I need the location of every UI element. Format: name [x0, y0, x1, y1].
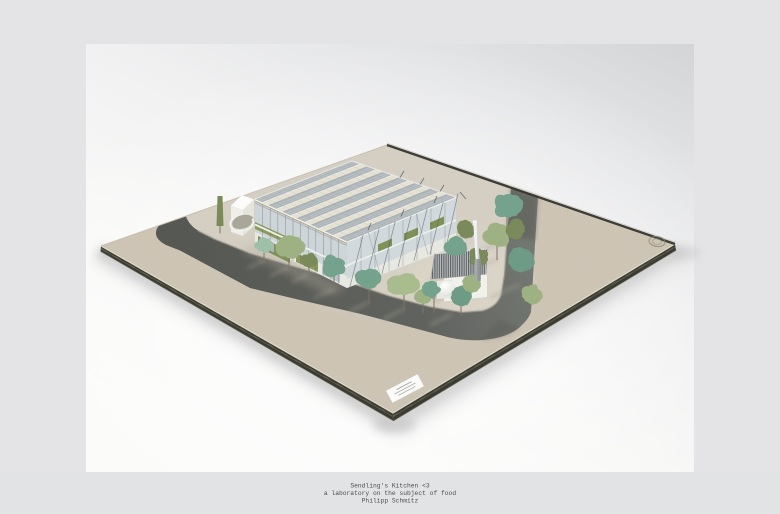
svg-text:Philipp Schmitz: Philipp Schmitz — [362, 498, 419, 505]
svg-text:a laboratory on the subject of: a laboratory on the subject of food — [324, 490, 456, 497]
svg-text:Sendling's Kitchen <3: Sendling's Kitchen <3 — [350, 483, 430, 490]
